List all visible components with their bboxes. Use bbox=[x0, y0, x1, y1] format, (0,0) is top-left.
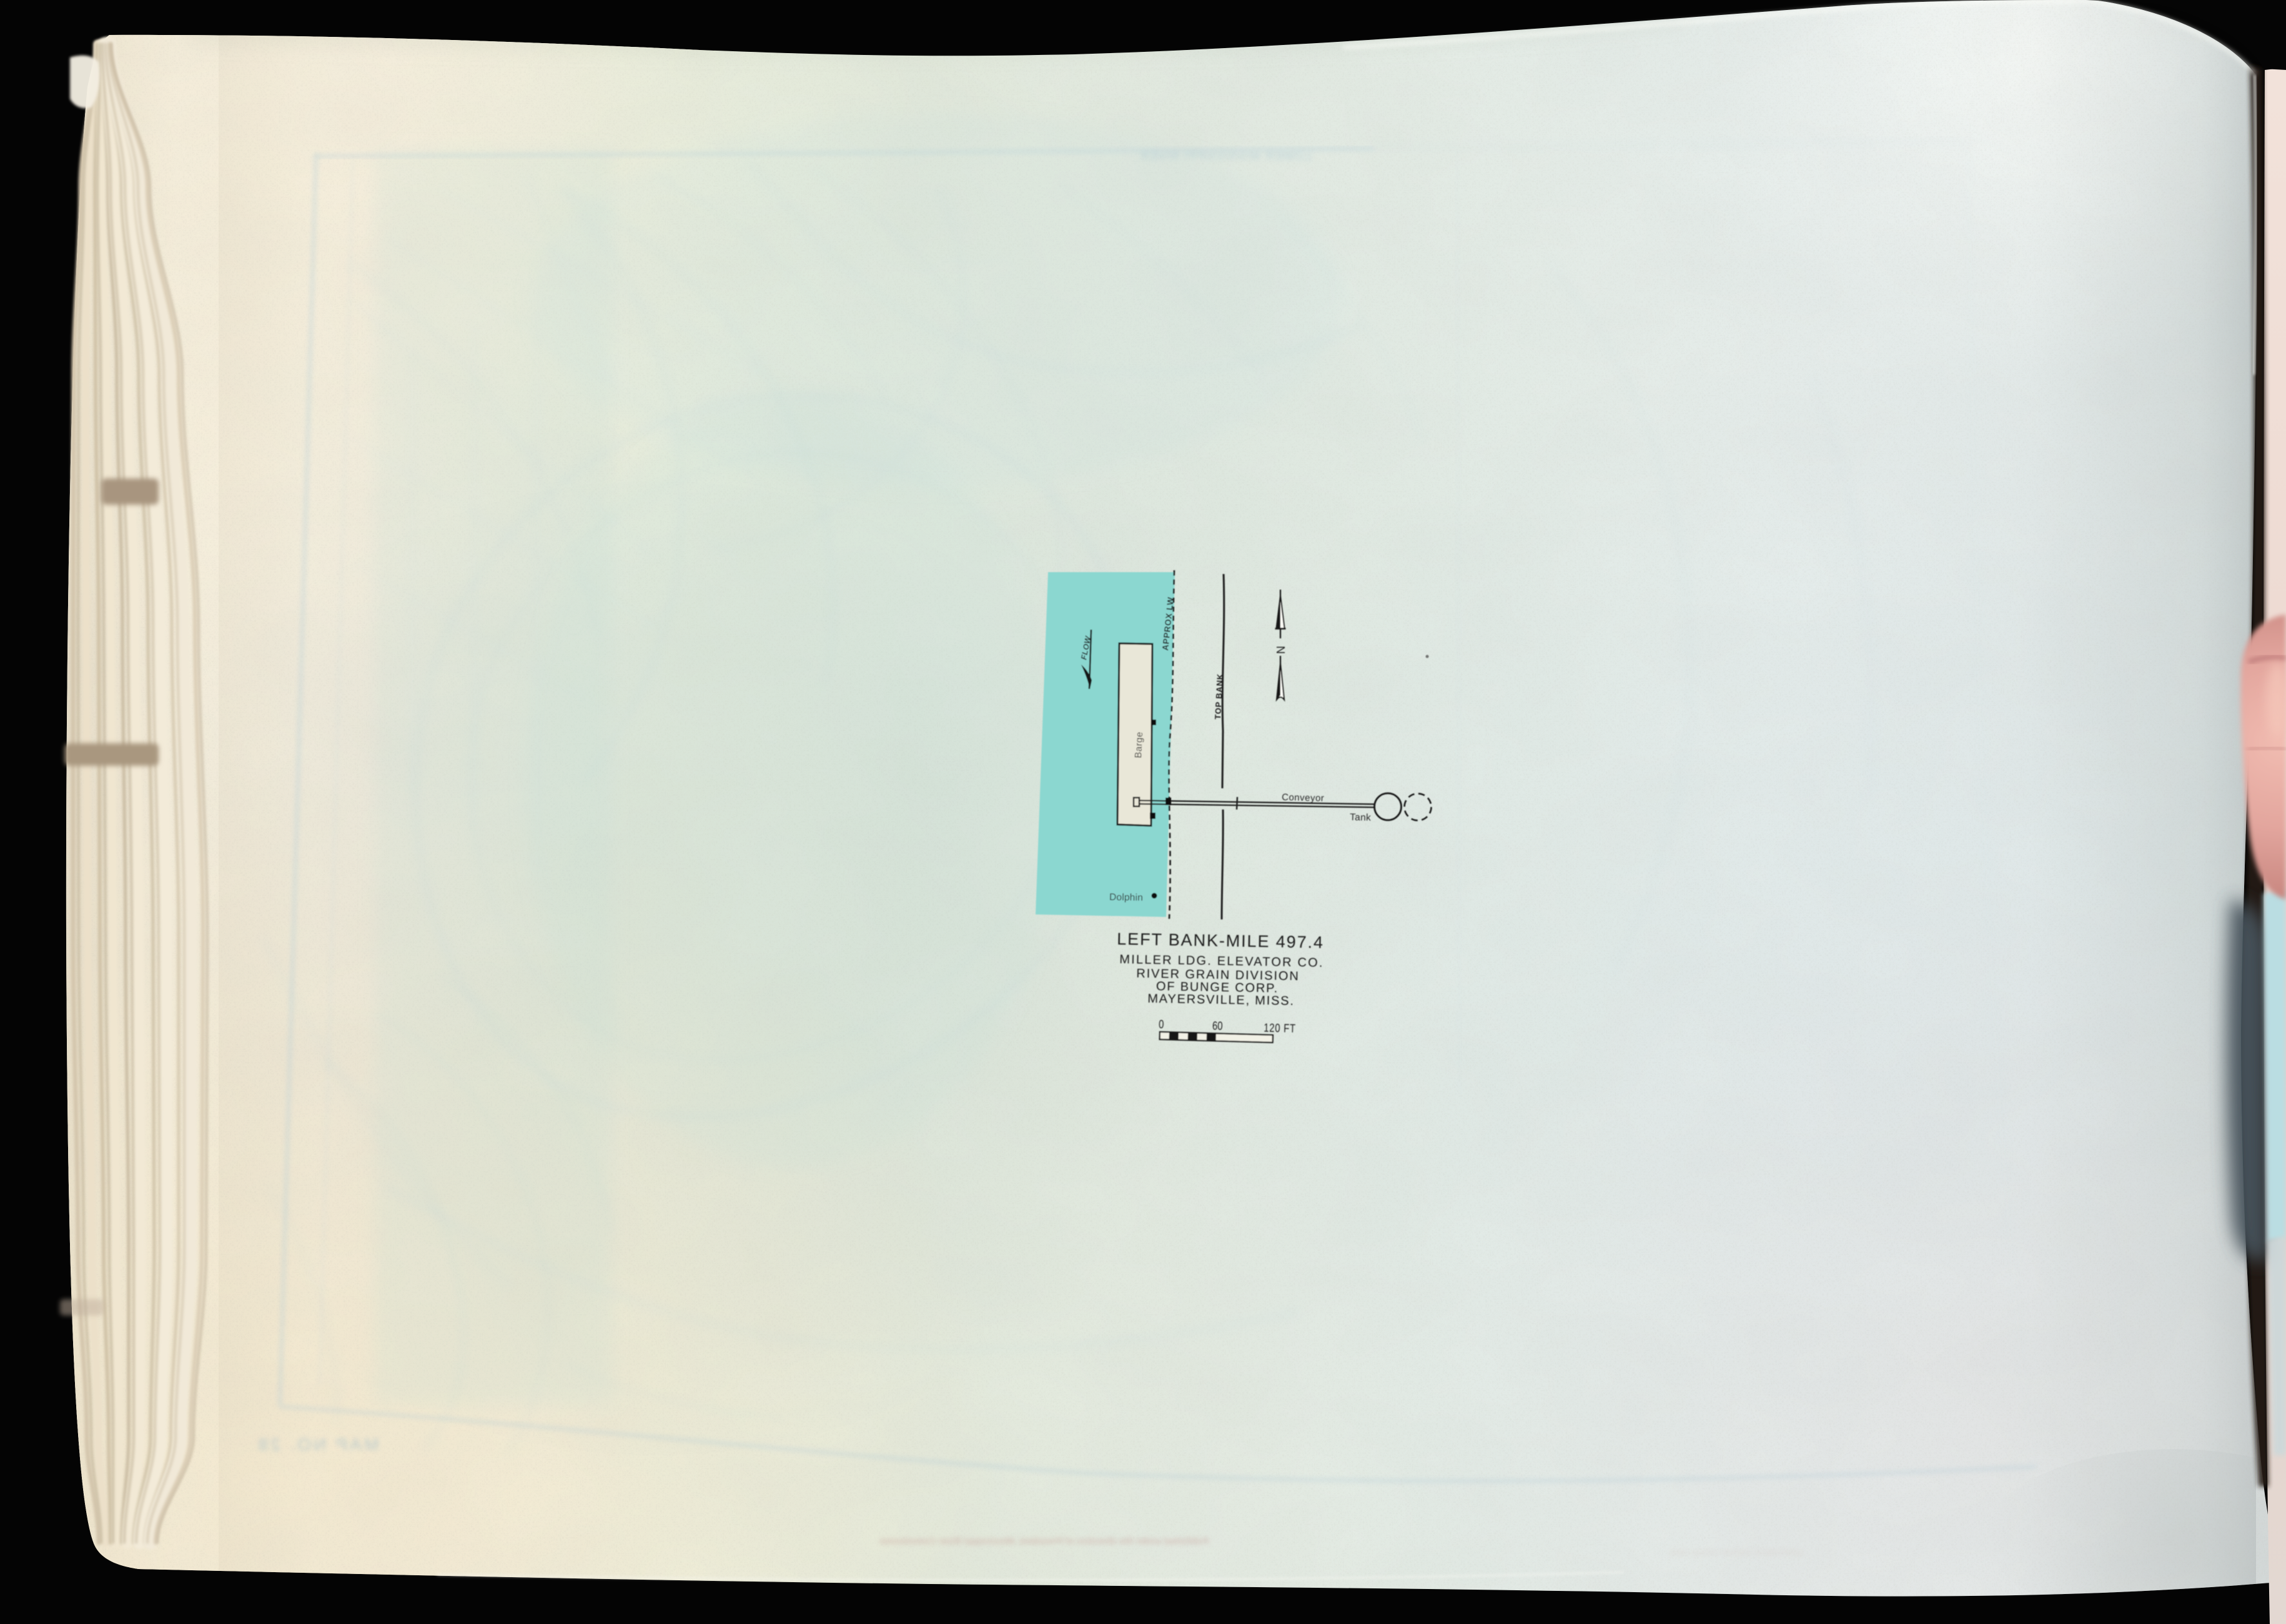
svg-text:60: 60 bbox=[1212, 1019, 1223, 1033]
svg-text:N: N bbox=[1275, 646, 1287, 654]
svg-text:MAYERSVILLE, MISS.: MAYERSVILLE, MISS. bbox=[1147, 992, 1295, 1008]
svg-text:120 FT: 120 FT bbox=[1264, 1021, 1296, 1036]
svg-text:0: 0 bbox=[1159, 1017, 1164, 1031]
svg-text:Barge: Barge bbox=[1133, 731, 1145, 758]
svg-text:Dolphin: Dolphin bbox=[1109, 892, 1143, 903]
svg-text:LOWER MISSISSIPPI RIVER: LOWER MISSISSIPPI RIVER bbox=[1140, 150, 1311, 163]
svg-text:corrected to include survey da: corrected to include survey data bbox=[1670, 1547, 1803, 1558]
svg-text:Published under the direction: Published under the direction of Preside… bbox=[879, 1536, 1209, 1547]
svg-text:MAP NO. 28: MAP NO. 28 bbox=[256, 1435, 379, 1454]
svg-text:LEFT BANK-MILE 497.4: LEFT BANK-MILE 497.4 bbox=[1117, 929, 1324, 952]
svg-text:Tank: Tank bbox=[1350, 812, 1371, 823]
svg-text:Conveyor: Conveyor bbox=[1282, 792, 1325, 804]
